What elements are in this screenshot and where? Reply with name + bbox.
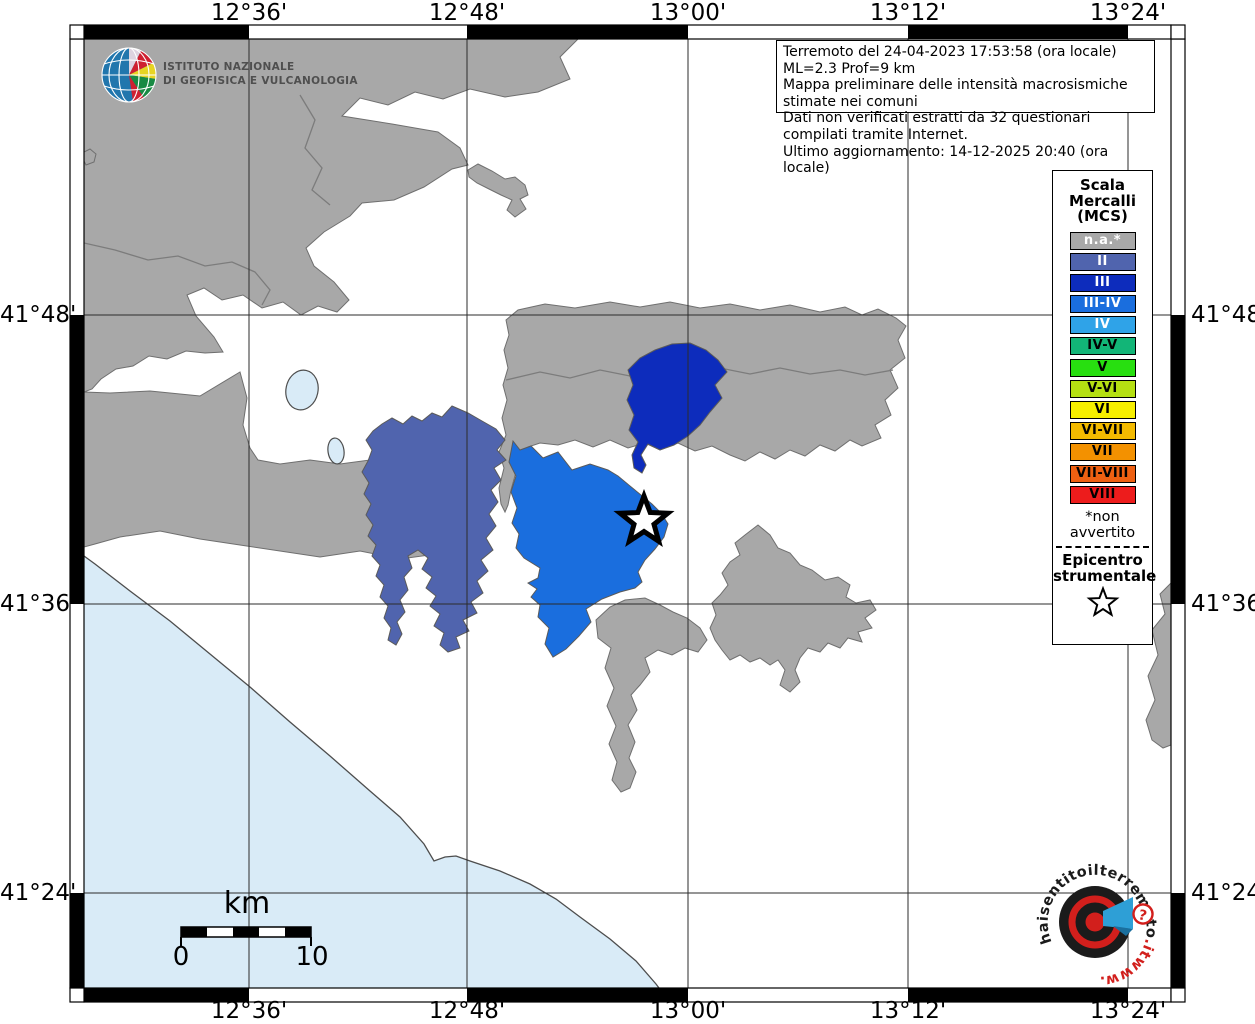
legend-item-vii: VII xyxy=(1070,443,1136,461)
legend-item-vi: VI xyxy=(1070,401,1136,419)
scalebar-end: 10 xyxy=(294,942,330,972)
ingv-line1: ISTITUTO NAZIONALE xyxy=(163,60,358,74)
lon-label-bottom: 12°48' xyxy=(407,998,527,1024)
lat-label-left: 41°24' xyxy=(0,880,66,906)
legend-star-icon xyxy=(1085,586,1121,620)
lon-label-top: 13°24' xyxy=(1068,0,1188,26)
info-line-data: Dati non verificati estratti da 32 quest… xyxy=(783,110,1148,143)
lon-label-top: 12°48' xyxy=(407,0,527,26)
lat-label-right: 41°24' xyxy=(1191,880,1255,906)
legend-item-iii: III xyxy=(1070,274,1136,292)
legend-item-iv-v: IV-V xyxy=(1070,337,1136,355)
lon-label-bottom: 12°36' xyxy=(189,998,309,1024)
legend-footnote: *non avvertito xyxy=(1053,509,1152,541)
scalebar-start: 0 xyxy=(166,942,196,972)
legend-title: Scala Mercalli (MCS) xyxy=(1053,178,1152,225)
legend-item-vi-vii: VI-VII xyxy=(1070,422,1136,440)
legend-item-na: n.a.* xyxy=(1070,232,1136,250)
lon-label-bottom: 13°12' xyxy=(848,998,968,1024)
lon-label-top: 12°36' xyxy=(189,0,309,26)
legend-item-vii-viii: VII-VIII xyxy=(1070,465,1136,483)
legend-item-viii: VIII xyxy=(1070,486,1136,504)
lat-label-right: 41°48' xyxy=(1191,302,1255,328)
legend-items: n.a.* II III III-IV IV IV-V V V-VI VI VI… xyxy=(1053,232,1152,504)
macroseismic-map-page: haisentitoilterremoto.itwww. ? 12°36' 12… xyxy=(0,0,1255,1024)
legend-epicenter-line2: strumentale xyxy=(1053,568,1152,584)
legend-title-line: (MCS) xyxy=(1053,209,1152,225)
legend-item-iv: IV xyxy=(1070,316,1136,334)
lat-label-left: 41°36' xyxy=(0,591,66,617)
mercalli-legend: Scala Mercalli (MCS) n.a.* II III III-IV… xyxy=(1052,170,1153,645)
earthquake-info-box: Terremoto del 24-04-2023 17:53:58 (ora l… xyxy=(776,40,1155,113)
lat-label-left: 41°48' xyxy=(0,302,66,328)
legend-item-iii-iv: III-IV xyxy=(1070,295,1136,313)
ingv-wordmark: ISTITUTO NAZIONALE DI GEOFISICA E VULCAN… xyxy=(163,60,358,88)
legend-divider xyxy=(1056,546,1149,548)
legend-epicenter-line1: Epicentro xyxy=(1053,552,1152,568)
ingv-logo xyxy=(102,48,156,102)
lon-label-bottom: 13°00' xyxy=(628,998,748,1024)
legend-item-v: V xyxy=(1070,359,1136,377)
legend-item-ii: II xyxy=(1070,253,1136,271)
legend-item-v-vi: V-VI xyxy=(1070,380,1136,398)
scalebar-unit: km xyxy=(216,886,278,921)
info-line-maptype: Mappa preliminare delle intensità macros… xyxy=(783,77,1148,110)
lon-label-top: 13°00' xyxy=(628,0,748,26)
lon-label-bottom: 13°24' xyxy=(1068,998,1188,1024)
lon-label-top: 13°12' xyxy=(848,0,968,26)
ingv-line2: DI GEOFISICA E VULCANOLOGIA xyxy=(163,74,358,88)
info-line-event: Terremoto del 24-04-2023 17:53:58 (ora l… xyxy=(783,44,1148,77)
lat-label-right: 41°36' xyxy=(1191,591,1255,617)
